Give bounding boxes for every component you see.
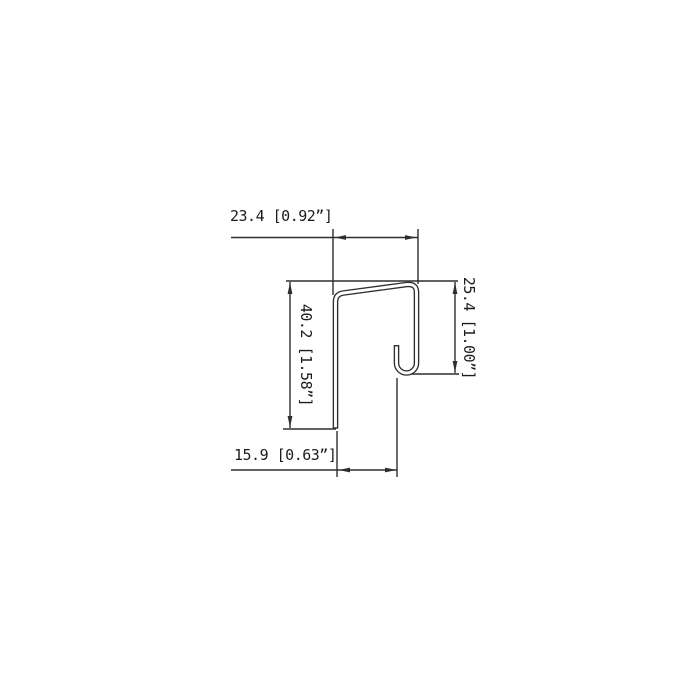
dimension-label-top-width: 23.4 [0.92”]: [230, 206, 332, 226]
profile-drawing-svg: [0, 0, 700, 700]
arrow-down-icon: [453, 361, 458, 373]
dimension-label-right-height: 25.4 [1.00”]: [459, 273, 479, 383]
dimension-lines: [231, 229, 459, 477]
profile-sheet-inner-fill: [336, 284, 417, 428]
profile-sheet-outer-edge: [336, 284, 417, 428]
dimension-label-bottom-width: 15.9 [0.63”]: [234, 445, 336, 465]
arrow-right-icon: [405, 235, 417, 240]
arrow-left-icon: [339, 468, 351, 473]
arrow-left-icon: [335, 235, 347, 240]
arrow-up-icon: [453, 283, 458, 295]
arrow-right-icon: [385, 468, 397, 473]
arrow-down-icon: [288, 416, 293, 428]
drawing-canvas: 23.4 [0.92”] 40.2 [1.58”] 25.4 [1.00”] 1…: [0, 0, 700, 700]
profile-outline: [333, 284, 417, 428]
arrow-up-icon: [288, 283, 293, 295]
dimension-label-left-height: 40.2 [1.58”]: [296, 300, 316, 410]
